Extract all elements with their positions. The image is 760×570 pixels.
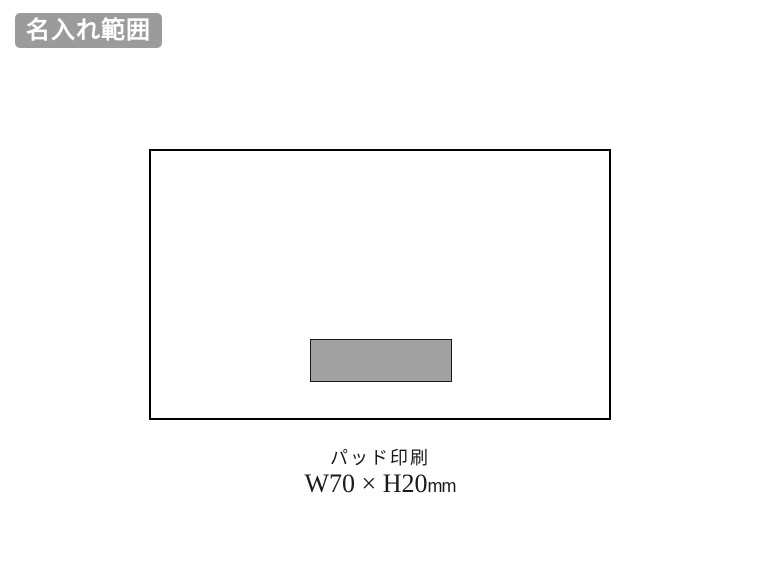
caption-block: パッド印刷 W70 × H20mm [149,446,611,500]
print-size-label: W70 × H20mm [149,470,611,500]
print-size-value: W70 × H20 [305,469,428,498]
print-size-unit: mm [427,476,455,496]
imprint-area-page: 名入れ範囲 パッド印刷 W70 × H20mm [0,0,760,570]
imprint-area-badge: 名入れ範囲 [15,13,162,48]
print-method-label: パッド印刷 [149,446,611,470]
print-area-rect [310,339,452,382]
